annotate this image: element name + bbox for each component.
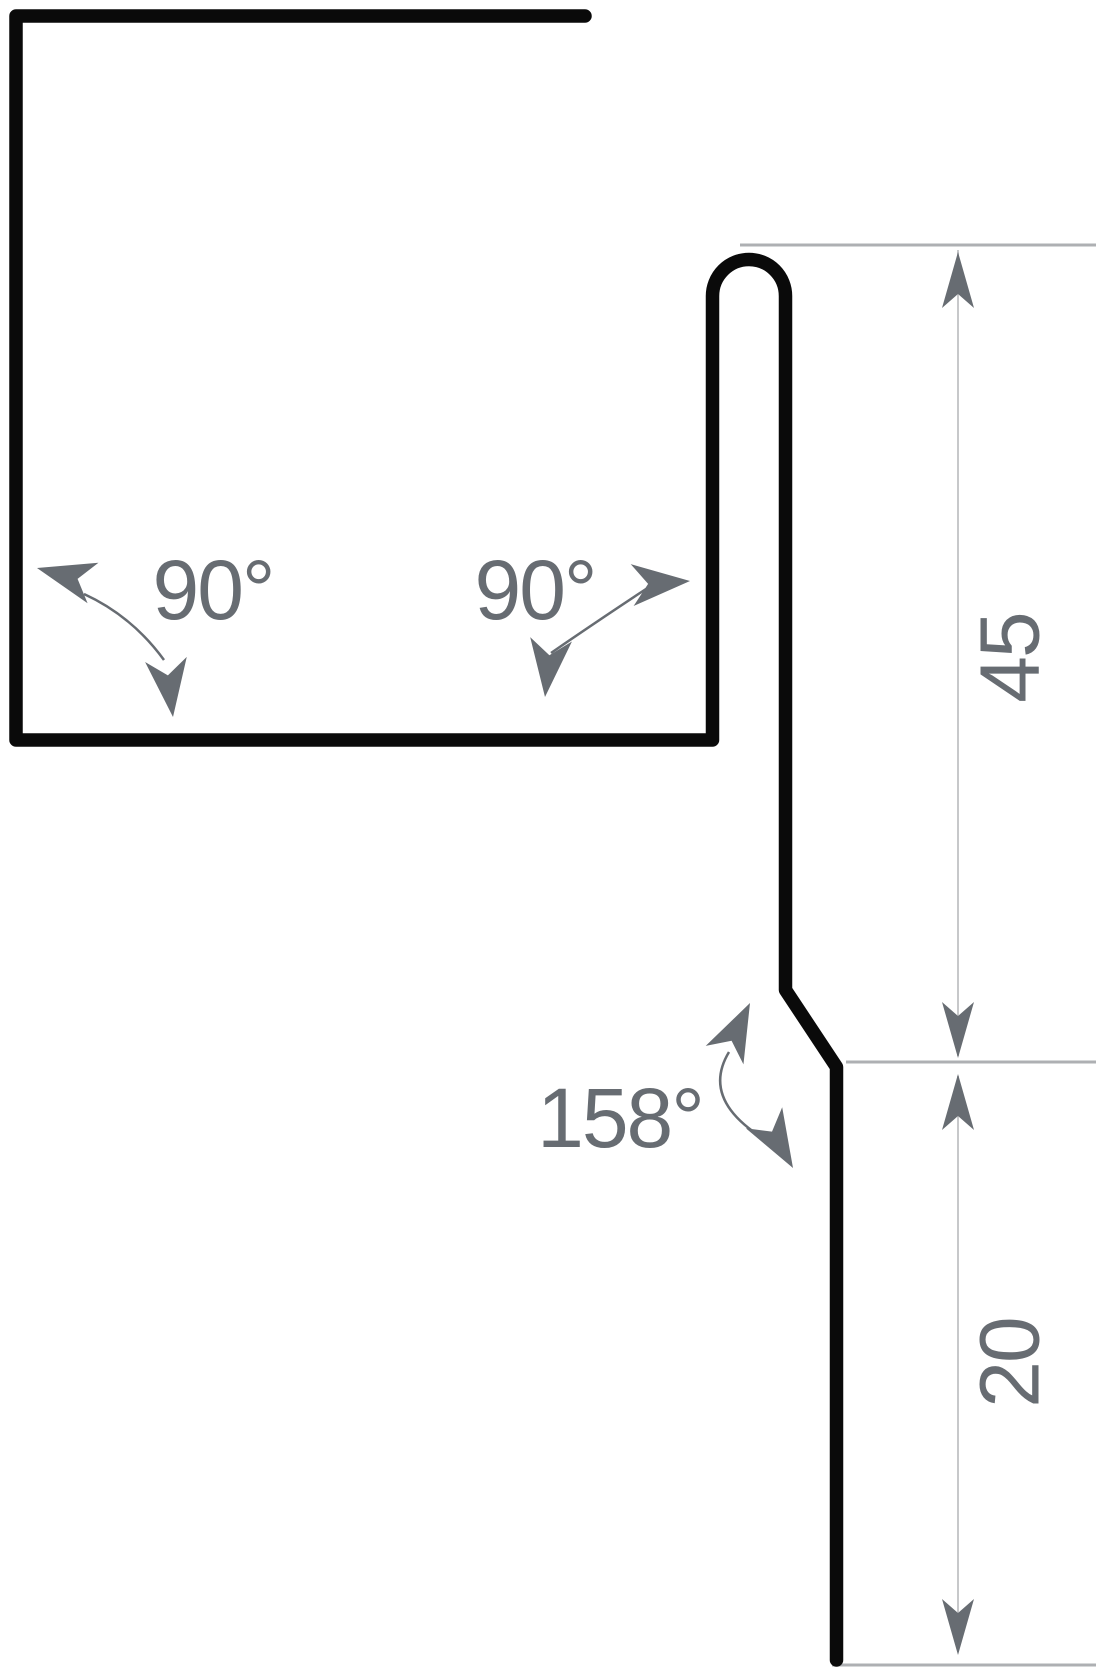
angle-90-right-arrowhead-floor-icon (524, 637, 572, 699)
dim-20-label: 20 (962, 1318, 1056, 1407)
angle-90-left-label: 90° (152, 543, 273, 637)
profile-outline-path (16, 16, 837, 1660)
angle-90-right: 90° (474, 543, 691, 699)
angle-158-label: 158° (537, 1071, 703, 1165)
angle-90-right-label: 90° (474, 543, 595, 637)
angle-90-left-arrowhead-floor-icon (145, 657, 194, 720)
dimension-45: 45 (740, 245, 1096, 1058)
angle-158-arc (720, 1052, 766, 1140)
dimension-20: 20 (832, 1062, 1096, 1665)
diagram-canvas: 45 20 90° 90° (0, 0, 1096, 1667)
angle-158-arrowhead-up-icon (706, 994, 769, 1065)
angle-90-right-arrowhead-wall-icon (631, 560, 692, 606)
dim-45-label: 45 (962, 613, 1056, 702)
profile-diagram: 45 20 90° 90° (0, 0, 1096, 1667)
angle-158-arrowhead-down-icon (746, 1107, 811, 1178)
angle-158-bend: 158° (537, 994, 811, 1179)
angle-90-left: 90° (32, 543, 274, 719)
